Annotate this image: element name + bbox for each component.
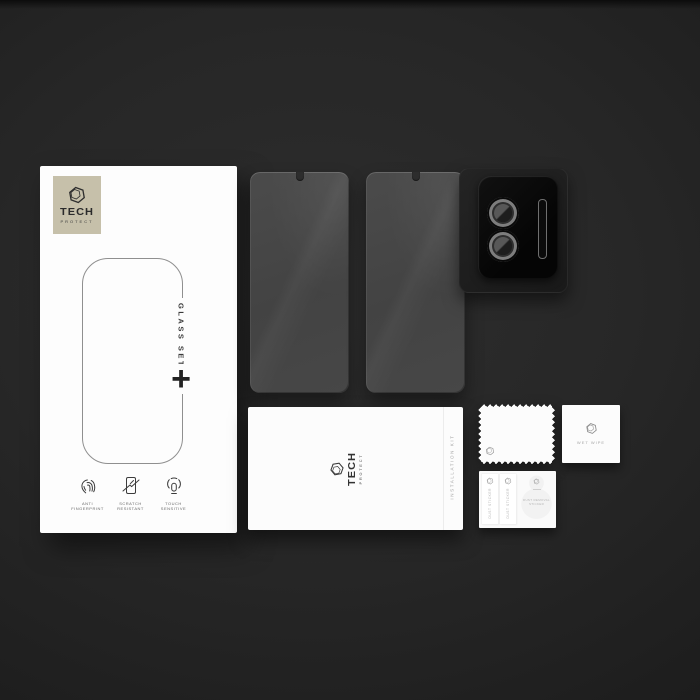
brand-hexagon-icon (485, 446, 495, 456)
lens-ring-1 (487, 197, 519, 229)
camera-lens-protector (478, 176, 558, 279)
serrated-sachet (478, 404, 555, 464)
feature-label-line: FINGERPRINT (71, 506, 104, 511)
brand-badge: TECH PROTECT (53, 176, 101, 234)
retail-box: TECH PROTECT GLASS SET + ANTI FINGERPRIN… (40, 166, 237, 533)
brand-hexagon-icon (486, 477, 494, 485)
scratch-screen-icon (119, 474, 143, 498)
camera-protector-plate (459, 168, 568, 293)
brand-subname: PROTECT (359, 454, 363, 485)
phone-outline-drawing (82, 258, 183, 464)
touch-icon (162, 474, 186, 498)
brand-name: TECH (60, 206, 94, 217)
fingerprint-icon (76, 474, 100, 498)
brand-hexagon-icon (504, 477, 512, 485)
divider (533, 489, 541, 490)
brand-hexagon-icon (585, 422, 598, 435)
installation-kit-packet: TECH PROTECT INSTALLATION KIT (248, 407, 463, 530)
brand-name: TECH (346, 452, 357, 486)
feature-label-line: SENSITIVE (161, 506, 186, 511)
tempered-glass-2 (366, 172, 465, 393)
flash-slot (538, 199, 547, 259)
brand-hexagon-icon (67, 185, 87, 205)
feature-touch-sensitive: TOUCH SENSITIVE (152, 474, 195, 511)
brand-hexagon-icon (329, 461, 345, 477)
feature-scratch-resistant: SCRATCH RESISTANT (109, 474, 152, 511)
sticker-label-line: STICKER (529, 502, 544, 506)
camera-notch-cutout (296, 172, 304, 181)
dust-strip-label: DUST STICKER (506, 488, 510, 519)
lens-ring-2 (487, 230, 519, 262)
brand-hexagon-icon (533, 478, 540, 485)
camera-notch-cutout (412, 172, 420, 181)
dust-strip-label: DUST STICKER (488, 488, 492, 519)
wet-wipe-label: WET WIPE (577, 440, 605, 445)
brand-subname: PROTECT (60, 219, 93, 224)
plus-icon: + (170, 364, 192, 394)
feature-label-line: RESISTANT (117, 506, 144, 511)
packet-seam (443, 407, 444, 530)
wet-wipe-packet: WET WIPE (562, 405, 620, 463)
dust-sticker-strip: DUST STICKER (482, 474, 498, 524)
feature-icon-row: ANTI FINGERPRINT SCRATCH RESISTANT TOUCH… (66, 474, 211, 511)
dust-sticker-card: DUST STICKER DUST STICKER DUST REMOVAL S… (479, 471, 556, 528)
product-photo: TECH PROTECT GLASS SET + ANTI FINGERPRIN… (0, 0, 700, 700)
brand-logo-rotated: TECH PROTECT (329, 452, 363, 486)
feature-anti-fingerprint: ANTI FINGERPRINT (66, 474, 109, 511)
dust-removal-sticker: DUST REMOVAL STICKER (520, 474, 553, 525)
tempered-glass-1 (250, 172, 349, 393)
installation-kit-label: INSTALLATION KIT (450, 434, 455, 499)
dust-sticker-strip: DUST STICKER (500, 474, 516, 524)
